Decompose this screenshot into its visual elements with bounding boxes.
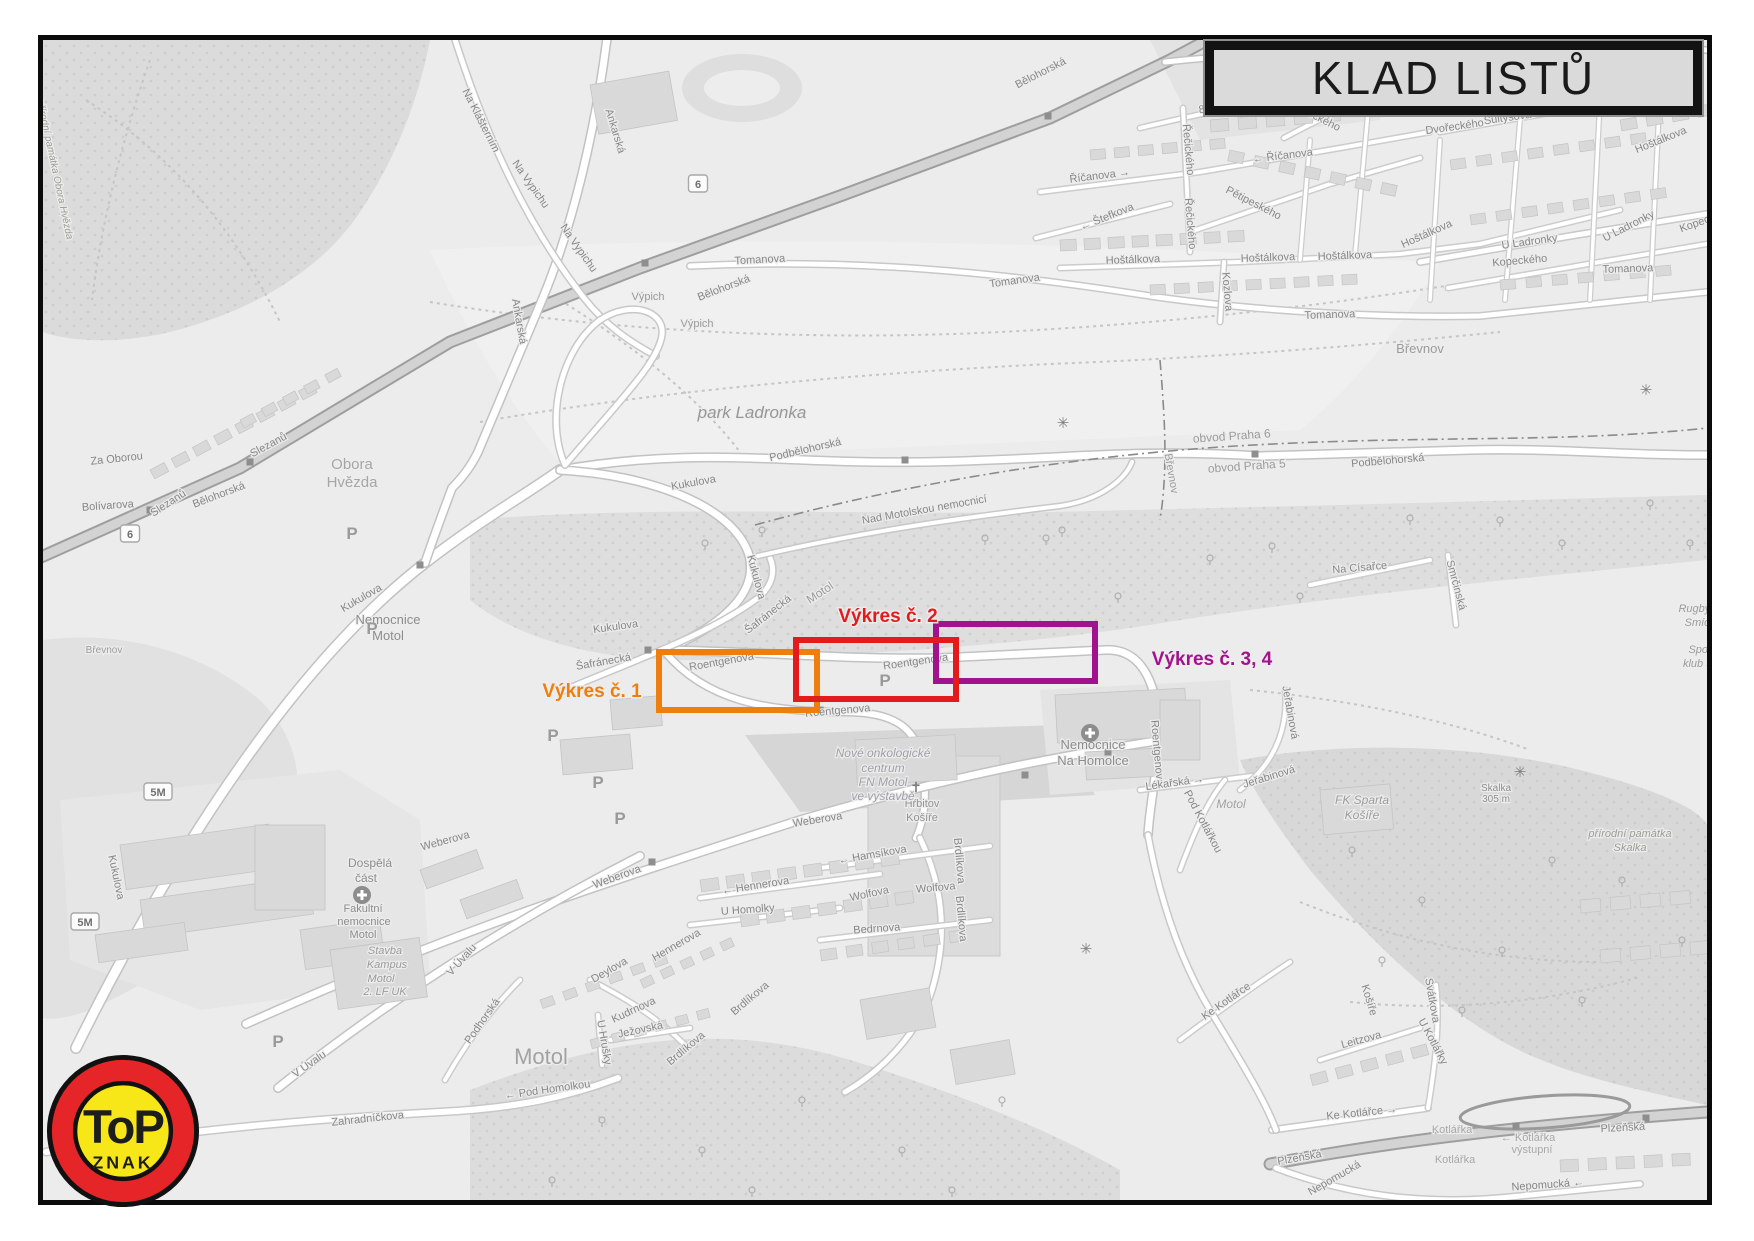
building: [1527, 147, 1543, 159]
building: [560, 734, 633, 775]
parking-icon: P: [346, 524, 357, 543]
parking-icon: P: [547, 726, 558, 745]
street-label: Motol: [1216, 797, 1246, 811]
street-label: Motol: [514, 1044, 568, 1069]
title-box: KLAD LISTŮ: [1205, 41, 1702, 115]
street-label: centrum: [861, 761, 904, 775]
building: [1228, 230, 1245, 242]
building: [1470, 213, 1486, 225]
building: [1553, 143, 1569, 155]
street-label: Skalka: [1481, 783, 1511, 794]
building: [894, 891, 913, 905]
street-label: FN Motol: [859, 775, 908, 789]
road-badge: 6: [689, 175, 708, 192]
transit-stop-icon: [642, 260, 649, 267]
building: [1690, 940, 1711, 955]
building: [897, 937, 914, 950]
transit-stop-icon: [1045, 113, 1052, 120]
building: [820, 948, 837, 961]
viewpoint-icon: ✳: [1080, 941, 1093, 958]
building: [1270, 278, 1286, 289]
transit-stop-icon: [649, 859, 656, 866]
street-label: Hoštálkova: [1240, 251, 1296, 265]
building: [1580, 898, 1601, 913]
parking-icon: P: [366, 619, 377, 638]
street-label: ve výstavbě: [851, 789, 915, 803]
building: [846, 944, 863, 957]
road-badge: 5M: [144, 783, 172, 800]
street-label: Výpich: [680, 318, 713, 330]
building: [1246, 279, 1262, 290]
road-badge-label: 6: [695, 179, 701, 191]
logo-bottom-text: ZNAK: [92, 1153, 153, 1173]
street-label: výstupní: [1512, 1144, 1553, 1156]
building: [1650, 188, 1666, 200]
parking-icon: P: [879, 671, 890, 690]
building: [1640, 893, 1661, 908]
building: [1318, 275, 1334, 286]
road-badge: 6: [121, 525, 140, 542]
building: [1476, 154, 1492, 166]
building: [1084, 238, 1101, 250]
building: [1578, 272, 1594, 283]
street-label: Břevnov: [86, 645, 123, 656]
building: [1616, 1156, 1635, 1169]
street-label: přírodní památka: [1587, 828, 1671, 840]
logo-top-text: ToP: [83, 1101, 163, 1154]
map-layers: Za OborouSlezanůSlezanůBolívarovaBělohor…: [30, 18, 1751, 1200]
building: [255, 825, 325, 910]
street-label: Na Homolce: [1057, 753, 1129, 768]
building: [1552, 274, 1568, 285]
street-label: Sportovní: [1688, 644, 1736, 656]
building: [700, 877, 719, 891]
map-sheet: Za OborouSlezanůSlezanůBolívarovaBělohor…: [0, 0, 1754, 1241]
building: [1160, 700, 1200, 760]
street-label: Tomanova: [1602, 262, 1654, 276]
building: [871, 941, 888, 954]
building: [1294, 277, 1310, 288]
building: [1132, 235, 1149, 247]
building: [1138, 145, 1154, 156]
road-badge-label: 6: [127, 529, 133, 541]
building: [1604, 136, 1620, 148]
building: [1060, 239, 1077, 251]
vykres-2-label: Výkres č. 2: [838, 606, 937, 627]
building: [1610, 896, 1631, 911]
viewpoint-icon: ✳: [1640, 382, 1653, 399]
parking-icon: P: [272, 1032, 283, 1051]
building: [817, 902, 836, 916]
building: [1114, 147, 1130, 158]
building: [1560, 1159, 1579, 1172]
street-label: Rugby klub: [1678, 603, 1733, 615]
street-label: Obora: [331, 456, 373, 473]
stadium-infield: [704, 70, 780, 106]
building: [1672, 1153, 1691, 1166]
street-label: část: [355, 871, 378, 885]
street-label: 305 m: [1482, 794, 1510, 805]
street-label: Motol: [350, 929, 377, 941]
building: [1210, 138, 1226, 149]
building: [1198, 282, 1214, 293]
building: [1150, 284, 1166, 295]
viewpoint-icon: ✳: [1514, 764, 1527, 781]
topznak-logo: ToP ZNAK: [44, 1052, 202, 1210]
building: [791, 905, 810, 919]
street-label: FK Sparta: [1335, 793, 1389, 807]
transit-stop-icon: [1022, 772, 1029, 779]
building: [1588, 1158, 1607, 1171]
transit-stop-icon: [417, 562, 424, 569]
street-label: ← Kotlářka: [1501, 1132, 1556, 1144]
building: [1342, 274, 1358, 285]
building: [1670, 890, 1691, 905]
street-label: Kotlářka: [1432, 1124, 1473, 1136]
building: [1655, 265, 1671, 276]
street-label: Kotlářka: [1435, 1154, 1476, 1166]
building: [1450, 158, 1466, 170]
building: [1526, 276, 1542, 287]
street-label: Smíchov: [1685, 617, 1729, 629]
building: [1630, 946, 1651, 961]
street-label: nemocnice: [337, 916, 390, 928]
building: [923, 933, 940, 946]
street-label: Košíře: [1345, 808, 1380, 822]
building: [1547, 202, 1563, 214]
street-label: Skalka: [1613, 842, 1646, 854]
street-label: Nové onkologické: [836, 746, 931, 760]
vykres-1-label: Výkres č. 1: [542, 681, 642, 702]
street-label: Fakultní: [343, 903, 382, 915]
street-label: Hoštálkova: [1105, 253, 1161, 267]
road-badge-label: 5M: [150, 787, 165, 799]
building: [1090, 149, 1106, 160]
building: [1156, 234, 1173, 246]
street-label: 2. LF UK: [362, 986, 407, 998]
street-label: Výpich: [631, 291, 664, 303]
street-label: Hvězda: [327, 474, 379, 491]
building: [1501, 151, 1517, 163]
building: [1722, 99, 1740, 113]
building: [803, 863, 822, 877]
street-label: Břevnov: [1396, 341, 1444, 356]
viewpoint-icon: ✳: [1057, 415, 1070, 432]
hospital-icon: [353, 886, 371, 904]
street-label: Nemocnice: [355, 612, 420, 627]
street-label: klub Smíchov: [1683, 658, 1751, 670]
street-label: Hoštálkova: [1317, 249, 1373, 263]
street-label: Kampus: [367, 959, 408, 971]
hospital-icon: [1081, 724, 1099, 742]
parking-icon: P: [592, 773, 603, 792]
building: [1644, 1155, 1663, 1168]
transit-stop-icon: [645, 647, 652, 654]
transit-stop-icon: [247, 459, 254, 466]
street-label: Tomanova: [1304, 308, 1356, 322]
building: [1162, 142, 1178, 153]
building: [1599, 195, 1615, 207]
building: [1573, 198, 1589, 210]
building: [1579, 140, 1595, 152]
building: [1500, 279, 1516, 290]
transit-stop-icon: [1252, 451, 1259, 458]
building: [1210, 118, 1229, 132]
parking-icon: P: [614, 809, 625, 828]
road-badge-label: 5M: [77, 917, 92, 929]
building: [1496, 209, 1512, 221]
map-area: [430, 241, 1440, 462]
building: [1620, 117, 1638, 131]
street-label: Košíře: [906, 812, 938, 824]
building: [1521, 206, 1537, 218]
building: [1660, 943, 1681, 958]
building: [1174, 283, 1190, 294]
map-canvas: Za OborouSlezanůSlezanůBolívarovaBělohor…: [0, 0, 1754, 1241]
vykres-3-4-label: Výkres č. 3, 4: [1152, 649, 1273, 670]
street-label: Dospělá: [348, 856, 392, 870]
street-label: park Ladronka: [697, 403, 807, 422]
church-icon: ✝: [910, 779, 922, 795]
street-label: Stavba: [368, 945, 402, 957]
building: [1204, 232, 1221, 244]
page-title: KLAD LISTŮ: [1312, 51, 1595, 105]
transit-stop-icon: [902, 457, 909, 464]
building: [1266, 114, 1285, 128]
street-label: Plzeňská: [1600, 1121, 1646, 1135]
transit-stop-icon: [1513, 1123, 1520, 1130]
street-label: Motol: [368, 973, 395, 985]
building: [1600, 948, 1621, 963]
building: [1108, 237, 1125, 249]
building: [1624, 191, 1640, 203]
road-badge: 5M: [71, 913, 99, 930]
